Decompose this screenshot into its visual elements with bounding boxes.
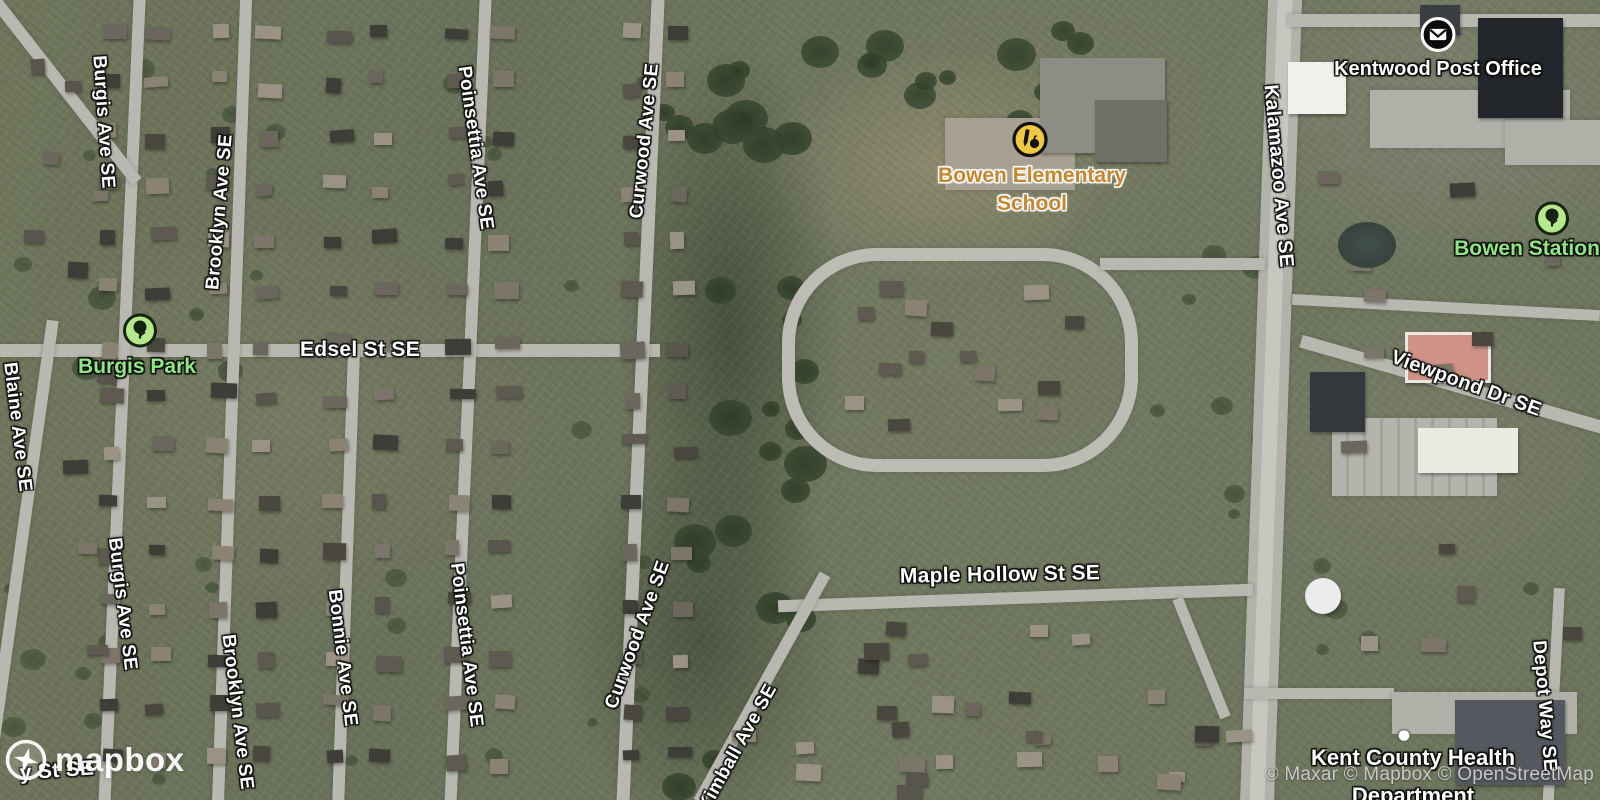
building	[620, 341, 646, 359]
building	[858, 307, 874, 320]
building	[495, 337, 520, 349]
building	[329, 286, 347, 297]
building	[489, 651, 510, 666]
satellite-map-canvas[interactable]: Burgis Ave SEBrooklyn Ave SEPoinsettia A…	[0, 0, 1600, 800]
building	[488, 235, 509, 251]
building	[93, 191, 109, 202]
building	[671, 546, 692, 559]
building	[1361, 636, 1377, 651]
building	[673, 602, 693, 617]
building	[1157, 773, 1182, 791]
tree-patch	[250, 270, 263, 281]
building	[445, 339, 471, 356]
building	[668, 130, 685, 141]
building	[369, 71, 384, 84]
building	[325, 78, 341, 94]
kentwood-post-office-label: Kentwood Post Office	[1334, 56, 1542, 82]
building	[493, 131, 514, 146]
building	[1065, 316, 1084, 329]
building	[960, 350, 977, 361]
building	[965, 702, 980, 715]
road	[1244, 688, 1394, 699]
building	[323, 175, 347, 189]
building	[99, 278, 118, 292]
building	[496, 385, 522, 397]
building	[78, 543, 97, 555]
building	[103, 24, 127, 39]
road	[1100, 258, 1265, 270]
building	[845, 396, 864, 410]
building	[864, 643, 890, 660]
building	[669, 383, 686, 399]
building	[666, 343, 688, 358]
tree-patch	[997, 38, 1036, 71]
building	[621, 495, 642, 509]
building	[1226, 729, 1252, 742]
tree-patch	[687, 123, 724, 154]
tree-patch	[75, 667, 90, 680]
poi-label-line: Burgis Park	[78, 354, 196, 380]
building	[330, 129, 355, 143]
building	[374, 388, 395, 401]
building	[670, 186, 687, 203]
building	[100, 230, 115, 245]
building	[795, 763, 821, 781]
building-white-roof	[1418, 428, 1518, 473]
building	[207, 343, 222, 359]
building	[145, 134, 165, 150]
building	[212, 545, 235, 560]
building	[446, 439, 463, 451]
building	[1026, 730, 1043, 741]
building	[888, 419, 910, 431]
building	[1195, 726, 1219, 743]
building	[626, 393, 640, 409]
building	[1148, 690, 1165, 704]
building	[327, 31, 352, 44]
building	[252, 746, 270, 762]
building	[1364, 288, 1387, 303]
school-icon	[1011, 121, 1049, 164]
building	[491, 441, 509, 454]
tree-patch	[84, 713, 102, 728]
building	[372, 228, 398, 243]
building	[255, 25, 281, 40]
building	[252, 440, 270, 452]
tree-patch	[724, 100, 768, 137]
building	[488, 540, 510, 552]
building	[446, 755, 467, 773]
building	[256, 601, 278, 618]
building	[908, 351, 923, 364]
building	[323, 543, 346, 560]
building	[1037, 406, 1059, 421]
building	[255, 702, 278, 717]
building	[1472, 332, 1494, 346]
building	[375, 597, 389, 613]
building	[329, 438, 349, 451]
building	[254, 235, 274, 248]
building	[490, 759, 509, 774]
street-label-edsel-st-se: Edsel St SE	[300, 338, 420, 362]
building	[1318, 171, 1340, 184]
building	[145, 178, 168, 195]
building	[445, 540, 459, 555]
building	[24, 230, 44, 244]
building	[375, 544, 390, 558]
tree-patch	[345, 755, 358, 766]
pond	[1338, 222, 1396, 268]
building	[666, 498, 689, 514]
building	[256, 393, 277, 406]
building	[668, 747, 692, 758]
tree-patch	[195, 557, 212, 572]
building	[152, 436, 175, 451]
building	[897, 785, 922, 800]
tree-patch	[385, 569, 406, 587]
building	[147, 497, 166, 508]
tree-patch	[1313, 558, 1331, 574]
building	[879, 363, 901, 376]
building	[673, 281, 696, 295]
building	[373, 704, 392, 721]
tree-patch	[632, 687, 650, 702]
building	[146, 26, 171, 41]
tree-patch	[715, 515, 752, 546]
building	[930, 321, 952, 336]
mapbox-logo-icon	[3, 737, 49, 783]
building-dome	[1305, 578, 1341, 614]
tree-icon	[122, 313, 158, 354]
building	[149, 545, 166, 556]
building	[327, 749, 344, 763]
poi-label-line: School	[938, 190, 1126, 218]
building	[374, 133, 393, 144]
building	[1563, 627, 1582, 640]
building	[796, 742, 815, 755]
tree-patch	[1211, 397, 1232, 415]
building	[259, 131, 277, 147]
building	[68, 262, 89, 279]
building	[1038, 381, 1060, 394]
tree-patch	[2, 717, 26, 737]
tree-patch	[1150, 404, 1165, 417]
building	[99, 495, 118, 507]
building	[621, 280, 644, 297]
building	[323, 396, 347, 408]
building	[206, 437, 229, 453]
building	[449, 495, 470, 512]
building	[974, 364, 995, 382]
building	[44, 151, 60, 165]
building	[255, 183, 272, 196]
poi-label-line: Kentwood Post Office	[1334, 56, 1542, 82]
building	[1363, 347, 1383, 358]
tree-patch	[564, 280, 579, 293]
burgis-park-label: Burgis Park	[78, 354, 196, 380]
building	[258, 652, 274, 668]
map-attribution[interactable]: © Maxar © Mapbox © OpenStreetMap	[1265, 764, 1594, 786]
building	[1310, 372, 1365, 432]
poi-label-line: Bowen Station	[1454, 236, 1600, 262]
building	[623, 749, 640, 760]
building	[936, 755, 954, 770]
building	[494, 695, 515, 710]
building	[372, 187, 388, 198]
tree-patch	[1224, 485, 1245, 503]
building	[447, 283, 468, 295]
building	[877, 706, 897, 720]
tree-patch	[587, 718, 598, 727]
building	[1341, 441, 1367, 454]
tree-patch	[728, 61, 750, 80]
building	[375, 655, 401, 672]
building	[259, 496, 280, 512]
building	[63, 459, 89, 474]
building	[1450, 183, 1475, 198]
building	[259, 548, 277, 563]
bowen-station-label: Bowen Station	[1454, 236, 1600, 262]
building	[145, 703, 163, 715]
parking-lot	[1505, 120, 1600, 165]
post-office-icon	[1420, 16, 1457, 58]
building	[209, 602, 227, 618]
building	[445, 237, 463, 249]
building	[448, 173, 463, 185]
building	[1017, 752, 1042, 767]
tree-patch	[189, 308, 204, 321]
building	[1024, 284, 1049, 300]
building	[623, 232, 637, 245]
building	[673, 447, 697, 459]
building	[622, 23, 641, 38]
tree-patch	[759, 442, 782, 461]
tree-patch	[662, 773, 695, 800]
building	[673, 654, 689, 668]
building	[666, 72, 684, 87]
building	[207, 748, 226, 764]
building	[151, 227, 177, 241]
building	[899, 758, 925, 773]
building	[104, 446, 120, 460]
building	[148, 604, 164, 616]
building	[670, 231, 685, 248]
building	[621, 544, 637, 561]
building	[100, 388, 125, 404]
street-label-maple-hollow-st-se: Maple Hollow St SE	[900, 561, 1101, 588]
building	[892, 722, 910, 739]
building	[1072, 634, 1091, 646]
building	[324, 237, 341, 248]
building	[494, 282, 519, 299]
building	[151, 647, 171, 661]
mapbox-wordmark: mapbox	[55, 741, 185, 779]
building	[210, 383, 236, 399]
building	[1421, 638, 1446, 653]
building	[144, 287, 170, 300]
poi-label-line: Bowen Elementary	[938, 162, 1126, 190]
building	[369, 749, 391, 763]
tree-patch	[1316, 644, 1328, 655]
tree-patch	[705, 277, 736, 304]
building	[885, 621, 906, 637]
tree-patch	[487, 148, 502, 161]
building	[490, 594, 512, 609]
building	[65, 81, 81, 92]
building	[1438, 543, 1454, 554]
building	[213, 24, 229, 39]
building	[207, 499, 233, 512]
tree-patch	[1182, 294, 1196, 306]
building	[905, 299, 928, 316]
building	[374, 281, 399, 295]
building	[144, 76, 169, 88]
tree-patch	[14, 257, 32, 272]
building	[212, 71, 227, 82]
building	[666, 707, 689, 721]
bowen-elementary-school-label: Bowen ElementarySchool	[938, 162, 1126, 218]
tree-patch	[205, 582, 218, 593]
building	[622, 434, 646, 445]
building	[908, 654, 928, 667]
tree-patch	[773, 122, 812, 155]
building	[491, 495, 511, 509]
mapbox-logo[interactable]: mapbox	[3, 737, 185, 783]
building	[490, 26, 515, 41]
building	[1030, 625, 1047, 637]
building	[1457, 585, 1476, 602]
building	[253, 341, 268, 354]
building	[623, 705, 642, 721]
building	[30, 59, 45, 75]
building	[450, 389, 476, 400]
building	[147, 389, 165, 400]
building	[258, 83, 283, 99]
building	[370, 25, 387, 37]
building	[371, 494, 385, 509]
building-school-wing	[1095, 100, 1167, 162]
building	[86, 645, 107, 656]
building	[1098, 756, 1118, 772]
building	[932, 696, 954, 714]
building	[493, 71, 515, 87]
building	[373, 434, 399, 451]
building	[256, 285, 279, 300]
building	[1009, 691, 1031, 704]
building	[445, 29, 468, 40]
building	[857, 658, 879, 675]
building	[998, 399, 1022, 411]
building	[668, 26, 688, 40]
building	[100, 698, 118, 711]
building	[880, 281, 903, 296]
building	[322, 494, 343, 507]
tree-patch	[20, 649, 45, 670]
